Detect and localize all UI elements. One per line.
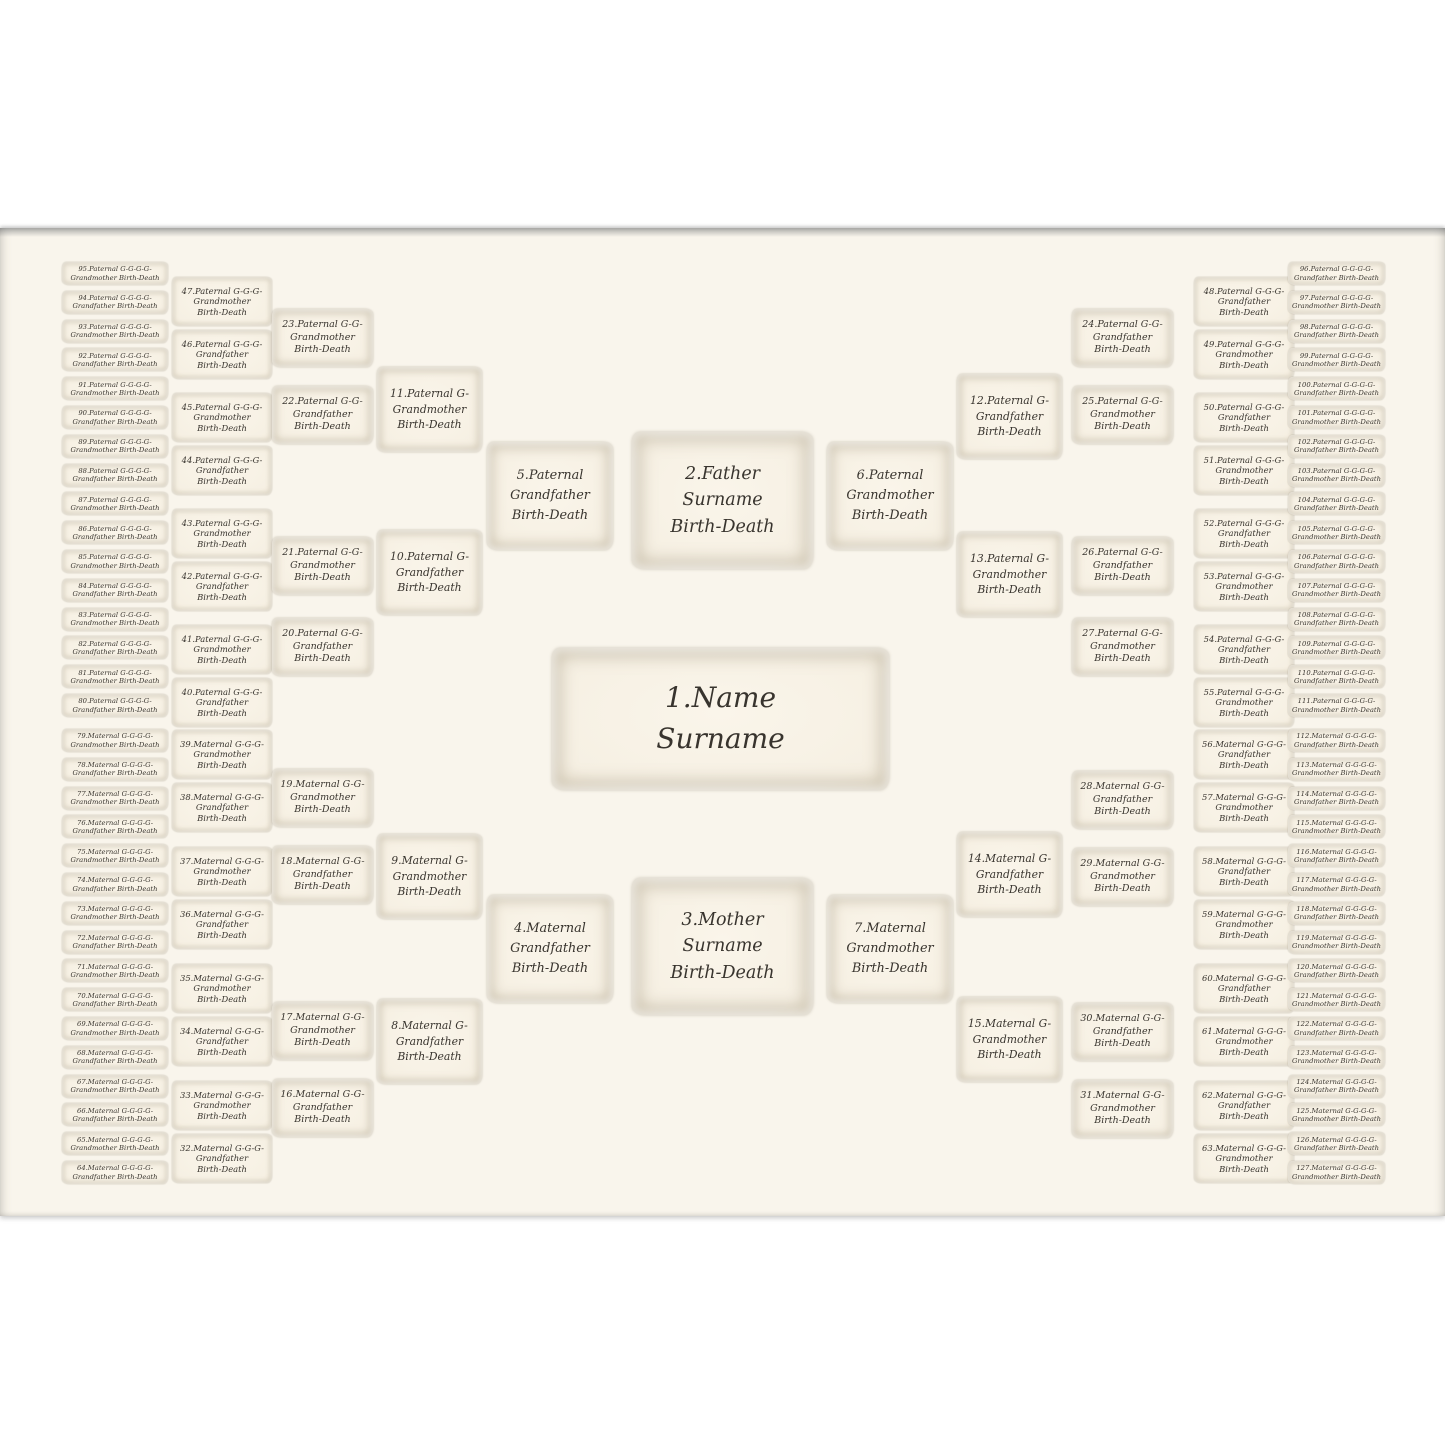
ancestor-box-125: 125.Maternal G-G-G-G-Grandmother Birth-D…	[1288, 1103, 1385, 1126]
ancestor-box-97: 97.Paternal G-G-G-G-Grandmother Birth-De…	[1288, 291, 1385, 314]
ancestor-box-6: 6.Paternal Grandmother Birth-Death	[827, 442, 953, 550]
ancestor-label: 13.Paternal G-Grandmother	[970, 552, 1049, 581]
ancestor-label: 22.Paternal G-G-Grandfather	[282, 396, 363, 419]
ancestor-label: 12.Paternal G-Grandfather	[970, 394, 1049, 423]
ancestor-dates: Birth-Death	[1339, 913, 1379, 921]
father-surname: Surname	[635, 487, 810, 513]
ancestor-box-123: 123.Maternal G-G-G-G-Grandmother Birth-D…	[1288, 1046, 1385, 1069]
mother-dates: Birth-Death	[635, 960, 810, 986]
ancestor-box-49: 49.Paternal G-G-G-Grandmother Birth-Deat…	[1194, 330, 1294, 379]
ancestor-dates: Birth-Death	[175, 423, 269, 434]
ancestor-label: 58.Maternal G-G-G-Grandfather	[1202, 856, 1286, 877]
ancestor-box-86: 86.Paternal G-G-G-G-Grandfather Birth-De…	[62, 521, 168, 544]
ancestor-dates: Birth-Death	[117, 1173, 157, 1181]
ancestor-box-51: 51.Paternal G-G-G-Grandmother Birth-Deat…	[1194, 446, 1294, 495]
ancestor-box-4: 4.Maternal Grandfather Birth-Death	[487, 895, 613, 1003]
ancestor-label: 25.Paternal G-G-Grandmother	[1082, 396, 1163, 419]
father-dates: Birth-Death	[635, 514, 810, 540]
ancestor-box-7: 7.Maternal Grandmother Birth-Death	[827, 895, 953, 1003]
ancestor-dates: Birth-Death	[1197, 423, 1291, 434]
ancestor-box-112: 112.Maternal G-G-G-G-Grandfather Birth-D…	[1288, 729, 1385, 752]
ancestor-label: 42.Paternal G-G-G-Grandfather	[182, 571, 263, 592]
ancestor-dates: Birth-Death	[1075, 421, 1170, 433]
ancestor-box-116: 116.Maternal G-G-G-G-Grandfather Birth-D…	[1288, 844, 1385, 867]
ancestor-box-56: 56.Maternal G-G-G-Grandfather Birth-Deat…	[1194, 730, 1294, 779]
mother-surname: Surname	[635, 933, 810, 959]
ancestor-dates: Birth-Death	[1339, 798, 1379, 806]
ancestor-label: 9.Maternal G-Grandmother	[391, 854, 467, 883]
ancestor-dates: Birth-Death	[1339, 619, 1379, 627]
ancestor-dates: Birth-Death	[1341, 942, 1381, 950]
ancestor-dates: Birth-Death	[119, 331, 159, 339]
ancestor-label: 41.Paternal G-G-G-Grandmother	[182, 634, 263, 655]
ancestor-box-35: 35.Maternal G-G-G-Grandmother Birth-Deat…	[172, 964, 272, 1013]
ancestor-box-3-mother: 3.Mother Surname Birth-Death	[632, 878, 813, 1015]
ancestor-box-23: 23.Paternal G-G-Grandmother Birth-Death	[272, 309, 373, 367]
ancestor-box-68: 68.Maternal G-G-G-G-Grandfather Birth-De…	[62, 1046, 168, 1069]
ancestry-chart: 1.Name Surname 2.Father Surname Birth-De…	[0, 228, 1445, 1216]
ancestor-box-93: 93.Paternal G-G-G-G-Grandmother Birth-De…	[62, 320, 168, 343]
ancestor-dates: Birth-Death	[1341, 1115, 1381, 1123]
ancestor-dates: Birth-Death	[1197, 539, 1291, 550]
ancestor-dates: Birth-Death	[1341, 885, 1381, 893]
ancestor-dates: Birth-Death	[1197, 930, 1291, 941]
ancestor-dates: Birth-Death	[117, 1115, 157, 1123]
ancestor-box-36: 36.Maternal G-G-G-Grandfather Birth-Deat…	[172, 900, 272, 949]
ancestor-label: 6.Paternal Grandmother	[846, 468, 933, 503]
ancestor-label: 20.Paternal G-G-Grandfather	[282, 628, 363, 651]
ancestor-dates: Birth-Death	[1075, 1038, 1170, 1050]
ancestor-label: 31.Maternal G-G-Grandmother	[1080, 1090, 1164, 1113]
ancestor-dates: Birth-Death	[1341, 418, 1381, 426]
ancestor-dates: Birth-Death	[1339, 1029, 1379, 1037]
ancestor-dates: Birth-Death	[1197, 994, 1291, 1005]
ancestor-dates: Birth-Death	[1341, 706, 1381, 714]
ancestor-label: 47.Paternal G-G-G-Grandmother	[182, 286, 263, 307]
ancestor-dates: Birth-Death	[1339, 562, 1379, 570]
ancestor-dates: Birth-Death	[380, 417, 479, 433]
ancestor-box-108: 108.Paternal G-G-G-G-Grandfather Birth-D…	[1288, 608, 1385, 631]
ancestor-label: 4.Maternal Grandfather	[510, 921, 590, 956]
ancestor-label: 38.Maternal G-G-G-Grandfather	[180, 792, 264, 813]
ancestor-box-121: 121.Maternal G-G-G-G-Grandmother Birth-D…	[1288, 988, 1385, 1011]
ancestor-box-28: 28.Maternal G-G-Grandfather Birth-Death	[1072, 771, 1173, 829]
ancestor-dates: Birth-Death	[1341, 1173, 1381, 1181]
ancestor-label: 54.Paternal G-G-G-Grandfather	[1204, 634, 1285, 655]
ancestor-box-54: 54.Paternal G-G-G-Grandfather Birth-Deat…	[1194, 625, 1294, 674]
ancestor-dates: Birth-Death	[380, 580, 479, 596]
ancestor-box-32: 32.Maternal G-G-G-Grandfather Birth-Deat…	[172, 1134, 272, 1183]
ancestor-box-106: 106.Paternal G-G-G-G-Grandfather Birth-D…	[1288, 550, 1385, 573]
ancestor-label: 60.Maternal G-G-G-Grandfather	[1202, 973, 1286, 994]
ancestor-label: 17.Maternal G-G-Grandmother	[280, 1012, 364, 1035]
ancestor-box-84: 84.Paternal G-G-G-G-Grandfather Birth-De…	[62, 579, 168, 602]
ancestor-box-37: 37.Maternal G-G-G-Grandmother Birth-Deat…	[172, 847, 272, 896]
ancestor-box-21: 21.Paternal G-G-Grandmother Birth-Death	[272, 537, 373, 595]
ancestor-box-64: 64.Maternal G-G-G-G-Grandfather Birth-De…	[62, 1161, 168, 1184]
ancestor-box-92: 92.Paternal G-G-G-G-Grandfather Birth-De…	[62, 348, 168, 371]
ancestor-box-16: 16.Maternal G-G-Grandfather Birth-Death	[272, 1079, 373, 1137]
ancestor-box-42: 42.Paternal G-G-G-Grandfather Birth-Deat…	[172, 562, 272, 611]
ancestor-dates: Birth-Death	[1339, 1144, 1379, 1152]
ancestor-box-44: 44.Paternal G-G-G-Grandfather Birth-Deat…	[172, 446, 272, 495]
ancestor-box-43: 43.Paternal G-G-G-Grandmother Birth-Deat…	[172, 509, 272, 558]
ancestor-dates: Birth-Death	[1339, 971, 1379, 979]
ancestor-box-58: 58.Maternal G-G-G-Grandfather Birth-Deat…	[1194, 847, 1294, 896]
ancestor-box-80: 80.Paternal G-G-G-G-Grandfather Birth-De…	[62, 694, 168, 717]
ancestor-label: 14.Maternal G-Grandfather	[968, 852, 1051, 881]
ancestor-box-40: 40.Paternal G-G-G-Grandfather Birth-Deat…	[172, 678, 272, 727]
ancestor-dates: Birth-Death	[119, 446, 159, 454]
ancestor-dates: Birth-Death	[117, 942, 157, 950]
ancestor-box-45: 45.Paternal G-G-G-Grandmother Birth-Deat…	[172, 393, 272, 442]
ancestor-dates: Birth-Death	[275, 572, 370, 584]
ancestor-dates: Birth-Death	[1075, 344, 1170, 356]
ancestor-box-12: 12.Paternal G-Grandfather Birth-Death	[957, 374, 1062, 459]
ancestor-box-107: 107.Paternal G-G-G-G-Grandmother Birth-D…	[1288, 579, 1385, 602]
ancestor-dates: Birth-Death	[1339, 1086, 1379, 1094]
ancestor-box-115: 115.Maternal G-G-G-G-Grandmother Birth-D…	[1288, 815, 1385, 838]
ancestor-box-29: 29.Maternal G-G-Grandmother Birth-Death	[1072, 848, 1173, 906]
ancestor-box-118: 118.Maternal G-G-G-G-Grandfather Birth-D…	[1288, 902, 1385, 925]
ancestor-box-24: 24.Paternal G-G-Grandfather Birth-Death	[1072, 309, 1173, 367]
father-label: 2.Father	[635, 461, 810, 487]
ancestor-box-78: 78.Maternal G-G-G-G-Grandfather Birth-De…	[62, 758, 168, 781]
ancestor-label: 35.Maternal G-G-G-Grandmother	[180, 973, 264, 994]
ancestor-dates: Birth-Death	[175, 930, 269, 941]
ancestor-dates: Birth-Death	[1197, 360, 1291, 371]
ancestor-box-99: 99.Paternal G-G-G-G-Grandmother Birth-De…	[1288, 348, 1385, 371]
ancestor-dates: Birth-Death	[175, 307, 269, 318]
ancestor-box-96: 96.Paternal G-G-G-G-Grandfather Birth-De…	[1288, 262, 1385, 285]
ancestor-box-71: 71.Maternal G-G-G-G-Grandmother Birth-De…	[62, 959, 168, 982]
ancestor-label: 28.Maternal G-G-Grandfather	[1080, 781, 1164, 804]
ancestor-label: 26.Paternal G-G-Grandfather	[1082, 547, 1163, 570]
ancestor-dates: Birth-Death	[1075, 806, 1170, 818]
ancestor-box-5: 5.Paternal Grandfather Birth-Death	[487, 442, 613, 550]
ancestor-label: 29.Maternal G-G-Grandmother	[1080, 858, 1164, 881]
ancestor-dates: Birth-Death	[960, 424, 1059, 440]
ancestor-box-61: 61.Maternal G-G-G-Grandmother Birth-Deat…	[1194, 1017, 1294, 1066]
ancestor-dates: Birth-Death	[175, 813, 269, 824]
ancestor-label: 48.Paternal G-G-G-Grandfather	[1204, 286, 1285, 307]
ancestor-dates: Birth-Death	[119, 913, 159, 921]
ancestor-label: 10.Paternal G-Grandfather	[390, 550, 469, 579]
ancestor-dates: Birth-Death	[117, 1000, 157, 1008]
ancestor-dates: Birth-Death	[117, 648, 157, 656]
ancestor-box-50: 50.Paternal G-G-G-Grandfather Birth-Deat…	[1194, 393, 1294, 442]
ancestor-box-91: 91.Paternal G-G-G-G-Grandmother Birth-De…	[62, 377, 168, 400]
ancestor-dates: Birth-Death	[1197, 307, 1291, 318]
ancestor-label: 33.Maternal G-G-G-Grandmother	[180, 1090, 264, 1111]
ancestor-label: 40.Paternal G-G-G-Grandfather	[182, 687, 263, 708]
ancestor-label: 8.Maternal G-Grandfather	[391, 1019, 467, 1048]
ancestor-dates: Birth-Death	[119, 562, 159, 570]
ancestor-box-1-self: 1.Name Surname	[552, 648, 889, 790]
ancestor-label: 37.Maternal G-G-G-Grandmother	[180, 856, 264, 877]
ancestor-dates: Birth-Death	[1341, 1000, 1381, 1008]
ancestor-label: 52.Paternal G-G-G-Grandfather	[1204, 518, 1285, 539]
ancestor-label: 59.Maternal G-G-G-Grandmother	[1202, 909, 1286, 930]
ancestor-dates: Birth-Death	[490, 959, 610, 979]
ancestor-dates: Birth-Death	[117, 418, 157, 426]
ancestor-box-47: 47.Paternal G-G-G-Grandmother Birth-Deat…	[172, 277, 272, 326]
ancestor-label: 49.Paternal G-G-G-Grandmother	[1204, 339, 1285, 360]
ancestor-dates: Birth-Death	[1075, 1115, 1170, 1127]
ancestor-label: 15.Maternal G-Grandmother	[968, 1017, 1051, 1046]
ancestor-dates: Birth-Death	[175, 1164, 269, 1175]
ancestor-dates: Birth-Death	[117, 769, 157, 777]
ancestor-dates: Birth-Death	[1339, 504, 1379, 512]
ancestor-box-114: 114.Maternal G-G-G-G-Grandfather Birth-D…	[1288, 787, 1385, 810]
ancestor-dates: Birth-Death	[380, 884, 479, 900]
ancestor-label: 19.Maternal G-G-Grandmother	[280, 779, 364, 802]
ancestor-box-70: 70.Maternal G-G-G-G-Grandfather Birth-De…	[62, 988, 168, 1011]
ancestor-box-69: 69.Maternal G-G-G-G-Grandmother Birth-De…	[62, 1017, 168, 1040]
ancestor-box-75: 75.Maternal G-G-G-G-Grandmother Birth-De…	[62, 844, 168, 867]
ancestor-label: 51.Paternal G-G-G-Grandmother	[1204, 455, 1285, 476]
ancestor-dates: Birth-Death	[117, 360, 157, 368]
ancestor-dates: Birth-Death	[1341, 1057, 1381, 1065]
ancestor-label: 44.Paternal G-G-G-Grandfather	[182, 455, 263, 476]
ancestor-label: 53.Paternal G-G-G-Grandmother	[1204, 571, 1285, 592]
ancestor-dates: Birth-Death	[1197, 1111, 1291, 1122]
ancestor-box-62: 62.Maternal G-G-G-Grandfather Birth-Deat…	[1194, 1081, 1294, 1130]
ancestor-dates: Birth-Death	[1075, 653, 1170, 665]
ancestor-dates: Birth-Death	[175, 1047, 269, 1058]
ancestor-box-33: 33.Maternal G-G-G-Grandmother Birth-Deat…	[172, 1081, 272, 1130]
self-surname: Surname	[555, 719, 886, 760]
ancestor-box-17: 17.Maternal G-G-Grandmother Birth-Death	[272, 1002, 373, 1060]
ancestor-dates: Birth-Death	[175, 1111, 269, 1122]
ancestor-box-117: 117.Maternal G-G-G-G-Grandmother Birth-D…	[1288, 873, 1385, 896]
ancestor-box-79: 79.Maternal G-G-G-G-Grandmother Birth-De…	[62, 729, 168, 752]
ancestor-box-13: 13.Paternal G-Grandmother Birth-Death	[957, 532, 1062, 617]
ancestor-label: 34.Maternal G-G-G-Grandfather	[180, 1026, 264, 1047]
ancestor-box-67: 67.Maternal G-G-G-G-Grandmother Birth-De…	[62, 1075, 168, 1098]
ancestor-label: 18.Maternal G-G-Grandfather	[280, 856, 364, 879]
ancestor-dates: Birth-Death	[1339, 741, 1379, 749]
ancestor-dates: Birth-Death	[1075, 572, 1170, 584]
ancestor-box-9: 9.Maternal G-Grandmother Birth-Death	[377, 834, 482, 919]
ancestor-dates: Birth-Death	[490, 506, 610, 526]
ancestor-dates: Birth-Death	[1341, 648, 1381, 656]
ancestor-box-30: 30.Maternal G-G-Grandfather Birth-Death	[1072, 1003, 1173, 1061]
ancestor-dates: Birth-Death	[119, 1029, 159, 1037]
ancestor-label: 50.Paternal G-G-G-Grandfather	[1204, 402, 1285, 423]
ancestor-box-100: 100.Paternal G-G-G-G-Grandfather Birth-D…	[1288, 377, 1385, 400]
ancestor-dates: Birth-Death	[275, 653, 370, 665]
ancestor-dates: Birth-Death	[1197, 1164, 1291, 1175]
ancestor-box-126: 126.Maternal G-G-G-G-Grandfather Birth-D…	[1288, 1132, 1385, 1155]
ancestor-dates: Birth-Death	[1339, 446, 1379, 454]
ancestor-box-103: 103.Paternal G-G-G-G-Grandmother Birth-D…	[1288, 464, 1385, 487]
ancestor-box-48: 48.Paternal G-G-G-Grandfather Birth-Deat…	[1194, 277, 1294, 326]
ancestor-dates: Birth-Death	[175, 708, 269, 719]
ancestor-box-27: 27.Paternal G-G-Grandmother Birth-Death	[1072, 618, 1173, 676]
ancestor-dates: Birth-Death	[275, 344, 370, 356]
ancestor-dates: Birth-Death	[175, 476, 269, 487]
ancestor-dates: Birth-Death	[830, 506, 950, 526]
ancestor-box-34: 34.Maternal G-G-G-Grandfather Birth-Deat…	[172, 1017, 272, 1066]
ancestor-dates: Birth-Death	[117, 706, 157, 714]
ancestor-dates: Birth-Death	[117, 302, 157, 310]
ancestor-label: 55.Paternal G-G-G-Grandmother	[1204, 687, 1285, 708]
ancestor-box-57: 57.Maternal G-G-G-Grandmother Birth-Deat…	[1194, 783, 1294, 832]
ancestor-dates: Birth-Death	[119, 856, 159, 864]
ancestor-dates: Birth-Death	[1197, 813, 1291, 824]
ancestor-dates: Birth-Death	[119, 389, 159, 397]
ancestor-label: 56.Maternal G-G-G-Grandfather	[1202, 739, 1286, 760]
ancestor-box-19: 19.Maternal G-G-Grandmother Birth-Death	[272, 769, 373, 827]
ancestor-box-110: 110.Paternal G-G-G-G-Grandfather Birth-D…	[1288, 665, 1385, 688]
ancestor-dates: Birth-Death	[119, 1144, 159, 1152]
ancestor-label: 62.Maternal G-G-G-Grandfather	[1202, 1090, 1286, 1111]
ancestor-dates: Birth-Death	[119, 741, 159, 749]
ancestor-dates: Birth-Death	[117, 885, 157, 893]
ancestor-dates: Birth-Death	[175, 360, 269, 371]
ancestor-box-113: 113.Maternal G-G-G-G-Grandmother Birth-D…	[1288, 758, 1385, 781]
ancestor-dates: Birth-Death	[960, 882, 1059, 898]
ancestor-box-52: 52.Paternal G-G-G-Grandfather Birth-Deat…	[1194, 509, 1294, 558]
ancestor-label: 5.Paternal Grandfather	[510, 468, 590, 503]
ancestor-box-120: 120.Maternal G-G-G-G-Grandfather Birth-D…	[1288, 959, 1385, 982]
ancestor-dates: Birth-Death	[1339, 677, 1379, 685]
ancestor-box-127: 127.Maternal G-G-G-G-Grandmother Birth-D…	[1288, 1161, 1385, 1184]
ancestor-dates: Birth-Death	[1341, 827, 1381, 835]
ancestor-box-119: 119.Maternal G-G-G-G-Grandmother Birth-D…	[1288, 931, 1385, 954]
ancestor-label: 36.Maternal G-G-G-Grandfather	[180, 909, 264, 930]
ancestor-dates: Birth-Death	[1339, 856, 1379, 864]
ancestor-box-15: 15.Maternal G-Grandmother Birth-Death	[957, 997, 1062, 1082]
ancestor-dates: Birth-Death	[1197, 592, 1291, 603]
ancestor-label: 39.Maternal G-G-G-Grandmother	[180, 739, 264, 760]
ancestor-label: 24.Paternal G-G-Grandfather	[1082, 319, 1163, 342]
ancestor-dates: Birth-Death	[119, 504, 159, 512]
ancestor-label: 16.Maternal G-G-Grandfather	[280, 1089, 364, 1112]
ancestor-dates: Birth-Death	[117, 827, 157, 835]
ancestor-box-101: 101.Paternal G-G-G-G-Grandmother Birth-D…	[1288, 406, 1385, 429]
ancestor-box-124: 124.Maternal G-G-G-G-Grandfather Birth-D…	[1288, 1075, 1385, 1098]
ancestor-box-39: 39.Maternal G-G-G-Grandmother Birth-Deat…	[172, 730, 272, 779]
ancestor-dates: Birth-Death	[1341, 360, 1381, 368]
ancestor-box-59: 59.Maternal G-G-G-Grandmother Birth-Deat…	[1194, 900, 1294, 949]
ancestor-box-122: 122.Maternal G-G-G-G-Grandfather Birth-D…	[1288, 1017, 1385, 1040]
ancestor-box-95: 95.Paternal G-G-G-G-Grandmother Birth-De…	[62, 262, 168, 285]
ancestor-box-105: 105.Paternal G-G-G-G-Grandmother Birth-D…	[1288, 521, 1385, 544]
ancestor-box-102: 102.Paternal G-G-G-G-Grandfather Birth-D…	[1288, 435, 1385, 458]
ancestor-box-10: 10.Paternal G-Grandfather Birth-Death	[377, 530, 482, 615]
ancestor-box-11: 11.Paternal G-Grandmother Birth-Death	[377, 367, 482, 452]
ancestor-dates: Birth-Death	[117, 475, 157, 483]
ancestor-box-90: 90.Paternal G-G-G-G-Grandfather Birth-De…	[62, 406, 168, 429]
ancestor-dates: Birth-Death	[175, 877, 269, 888]
ancestor-box-94: 94.Paternal G-G-G-G-Grandfather Birth-De…	[62, 291, 168, 314]
ancestor-dates: Birth-Death	[175, 539, 269, 550]
ancestor-box-22: 22.Paternal G-G-Grandfather Birth-Death	[272, 386, 373, 444]
ancestor-box-89: 89.Paternal G-G-G-G-Grandmother Birth-De…	[62, 435, 168, 458]
ancestor-box-26: 26.Paternal G-G-Grandfather Birth-Death	[1072, 537, 1173, 595]
ancestor-label: 45.Paternal G-G-G-Grandmother	[182, 402, 263, 423]
ancestor-dates: Birth-Death	[1341, 769, 1381, 777]
ancestor-dates: Birth-Death	[117, 1057, 157, 1065]
ancestor-dates: Birth-Death	[1341, 590, 1381, 598]
ancestor-box-73: 73.Maternal G-G-G-G-Grandmother Birth-De…	[62, 902, 168, 925]
ancestor-box-65: 65.Maternal G-G-G-G-Grandmother Birth-De…	[62, 1132, 168, 1155]
ancestor-dates: Birth-Death	[1197, 655, 1291, 666]
ancestor-box-109: 109.Paternal G-G-G-G-Grandmother Birth-D…	[1288, 636, 1385, 659]
ancestor-dates: Birth-Death	[119, 274, 159, 282]
ancestor-box-60: 60.Maternal G-G-G-Grandfather Birth-Deat…	[1194, 964, 1294, 1013]
ancestor-box-76: 76.Maternal G-G-G-G-Grandfather Birth-De…	[62, 815, 168, 838]
ancestor-box-20: 20.Paternal G-G-Grandfather Birth-Death	[272, 618, 373, 676]
ancestor-dates: Birth-Death	[275, 881, 370, 893]
ancestor-box-8: 8.Maternal G-Grandfather Birth-Death	[377, 999, 482, 1084]
ancestor-box-41: 41.Paternal G-G-G-Grandmother Birth-Deat…	[172, 625, 272, 674]
ancestor-box-55: 55.Paternal G-G-G-Grandmother Birth-Deat…	[1194, 678, 1294, 727]
ancestor-dates: Birth-Death	[960, 582, 1059, 598]
ancestor-box-88: 88.Paternal G-G-G-G-Grandfather Birth-De…	[62, 464, 168, 487]
ancestor-label: 27.Paternal G-G-Grandmother	[1082, 628, 1163, 651]
ancestor-dates: Birth-Death	[380, 1049, 479, 1065]
ancestor-box-63: 63.Maternal G-G-G-Grandmother Birth-Deat…	[1194, 1134, 1294, 1183]
ancestor-dates: Birth-Death	[1197, 760, 1291, 771]
ancestor-label: 57.Maternal G-G-G-Grandmother	[1202, 792, 1286, 813]
ancestor-dates: Birth-Death	[119, 619, 159, 627]
ancestor-box-98: 98.Paternal G-G-G-G-Grandfather Birth-De…	[1288, 320, 1385, 343]
ancestor-box-104: 104.Paternal G-G-G-G-Grandfather Birth-D…	[1288, 492, 1385, 515]
ancestor-box-18: 18.Maternal G-G-Grandfather Birth-Death	[272, 846, 373, 904]
ancestor-dates: Birth-Death	[175, 760, 269, 771]
ancestor-label: 43.Paternal G-G-G-Grandmother	[182, 518, 263, 539]
ancestor-box-87: 87.Paternal G-G-G-G-Grandmother Birth-De…	[62, 492, 168, 515]
ancestor-dates: Birth-Death	[1075, 883, 1170, 895]
ancestor-label: 7.Maternal Grandmother	[846, 921, 933, 956]
ancestor-box-85: 85.Paternal G-G-G-G-Grandmother Birth-De…	[62, 550, 168, 573]
ancestor-dates: Birth-Death	[1339, 274, 1379, 282]
ancestor-dates: Birth-Death	[119, 798, 159, 806]
ancestor-label: 32.Maternal G-G-G-Grandfather	[180, 1143, 264, 1164]
ancestor-label: 21.Paternal G-G-Grandmother	[282, 547, 363, 570]
ancestor-box-111: 111.Paternal G-G-G-G-Grandmother Birth-D…	[1288, 694, 1385, 717]
ancestor-box-2-father: 2.Father Surname Birth-Death	[632, 432, 813, 569]
ancestor-box-38: 38.Maternal G-G-G-Grandfather Birth-Deat…	[172, 783, 272, 832]
self-name: 1.Name	[555, 678, 886, 719]
ancestor-label: 46.Paternal G-G-G-Grandfather	[182, 339, 263, 360]
ancestor-box-25: 25.Paternal G-G-Grandmother Birth-Death	[1072, 386, 1173, 444]
ancestor-dates: Birth-Death	[175, 655, 269, 666]
ancestor-dates: Birth-Death	[1197, 476, 1291, 487]
ancestor-label: 30.Maternal G-G-Grandfather	[1080, 1013, 1164, 1036]
ancestor-label: 63.Maternal G-G-G-Grandmother	[1202, 1143, 1286, 1164]
ancestor-dates: Birth-Death	[275, 1037, 370, 1049]
ancestor-dates: Birth-Death	[1339, 389, 1379, 397]
ancestor-dates: Birth-Death	[960, 1047, 1059, 1063]
ancestor-box-66: 66.Maternal G-G-G-G-Grandfather Birth-De…	[62, 1103, 168, 1126]
ancestor-dates: Birth-Death	[275, 421, 370, 433]
mother-label: 3.Mother	[635, 907, 810, 933]
ancestor-box-31: 31.Maternal G-G-Grandmother Birth-Death	[1072, 1080, 1173, 1138]
ancestor-dates: Birth-Death	[175, 994, 269, 1005]
ancestor-box-72: 72.Maternal G-G-G-G-Grandfather Birth-De…	[62, 931, 168, 954]
ancestor-box-83: 83.Paternal G-G-G-G-Grandmother Birth-De…	[62, 608, 168, 631]
ancestor-label: 61.Maternal G-G-G-Grandmother	[1202, 1026, 1286, 1047]
ancestor-dates: Birth-Death	[1197, 708, 1291, 719]
ancestor-dates: Birth-Death	[117, 533, 157, 541]
ancestor-box-74: 74.Maternal G-G-G-G-Grandfather Birth-De…	[62, 873, 168, 896]
ancestor-dates: Birth-Death	[275, 1114, 370, 1126]
ancestor-label: 11.Paternal G-Grandmother	[390, 387, 469, 416]
